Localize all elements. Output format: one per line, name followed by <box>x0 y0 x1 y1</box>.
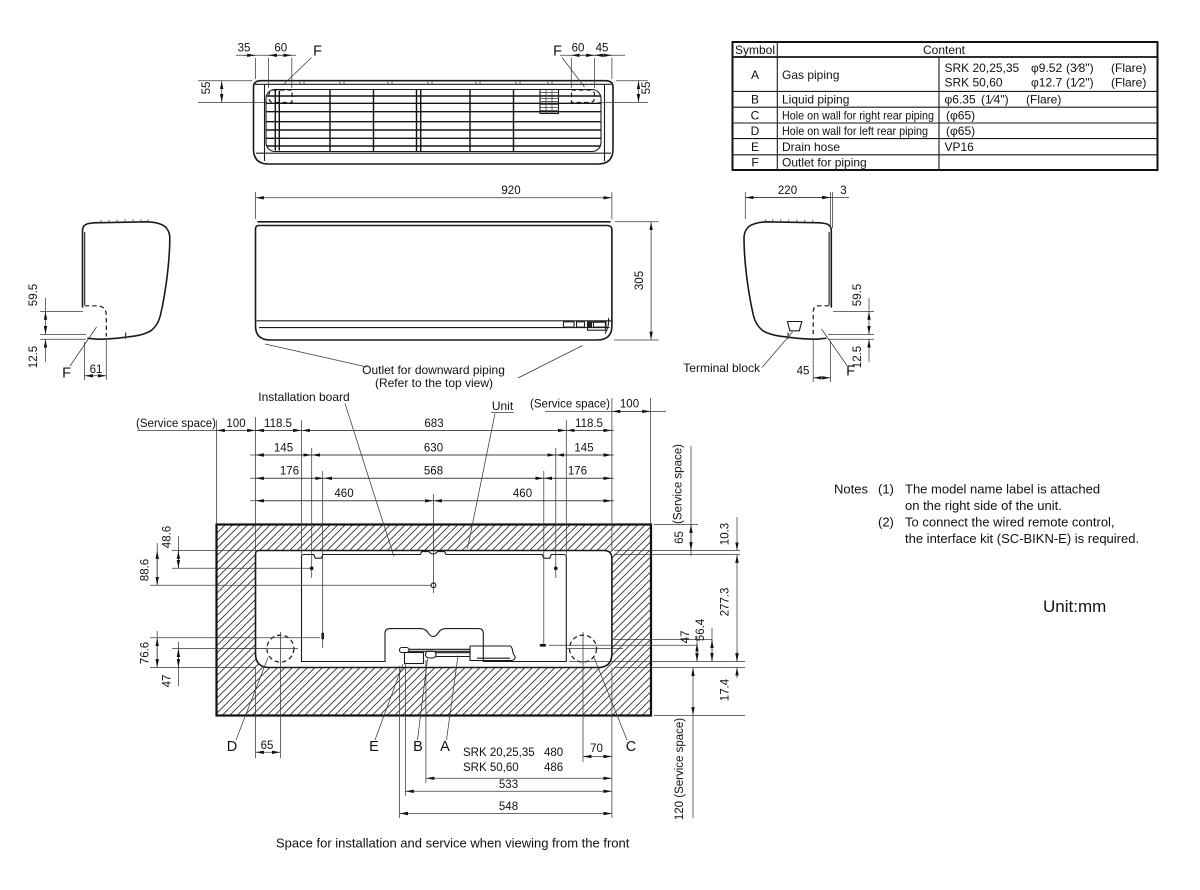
svg-text:(φ65): (φ65) <box>946 109 975 123</box>
svg-text:To connect the wired remote co: To connect the wired remote control, <box>905 515 1115 530</box>
svg-text:D: D <box>227 739 237 755</box>
svg-text:SRK 20,25,35: SRK 20,25,35 <box>463 747 535 759</box>
svg-text:45: 45 <box>797 366 810 378</box>
svg-text:Notes: Notes <box>834 482 868 497</box>
svg-text:SRK 50,60: SRK 50,60 <box>945 76 1003 90</box>
svg-text:145: 145 <box>274 442 293 454</box>
svg-text:E: E <box>751 140 759 154</box>
svg-text:(Service space): (Service space) <box>136 418 216 430</box>
svg-text:Drain hose: Drain hose <box>782 140 840 154</box>
svg-text:47: 47 <box>680 631 692 644</box>
svg-text:(Refer to the top view): (Refer to the top view) <box>375 376 493 390</box>
svg-text:C: C <box>751 109 760 123</box>
svg-text:220: 220 <box>778 185 797 197</box>
svg-text:C: C <box>626 739 636 755</box>
svg-text:Terminal block: Terminal block <box>683 361 761 375</box>
svg-text:55: 55 <box>641 82 653 95</box>
svg-text:100: 100 <box>226 418 245 430</box>
svg-text:55: 55 <box>201 82 213 95</box>
svg-text:568: 568 <box>424 466 443 478</box>
svg-text:460: 460 <box>513 488 532 500</box>
svg-text:920: 920 <box>501 185 520 197</box>
svg-text:D: D <box>751 124 760 138</box>
svg-text:Unit:mm: Unit:mm <box>1043 597 1106 616</box>
svg-text:Liquid piping: Liquid piping <box>782 93 849 107</box>
svg-text:F: F <box>313 44 322 60</box>
svg-text:59.5: 59.5 <box>852 284 864 306</box>
svg-text:VP16: VP16 <box>945 140 975 154</box>
svg-text:48.6: 48.6 <box>162 526 174 548</box>
svg-text:φ6.35: φ6.35 <box>945 93 976 107</box>
svg-text:F: F <box>62 366 71 382</box>
svg-text:Content: Content <box>923 43 966 57</box>
svg-text:35: 35 <box>238 43 251 55</box>
svg-text:φ9.52: φ9.52 <box>1031 61 1062 75</box>
svg-text:533: 533 <box>499 779 518 791</box>
svg-text:12.5: 12.5 <box>28 346 40 368</box>
svg-text:12.5: 12.5 <box>852 346 864 368</box>
svg-text:F: F <box>553 44 562 60</box>
svg-text:Unit: Unit <box>492 399 514 413</box>
svg-text:683: 683 <box>424 418 443 430</box>
svg-text:Installation board: Installation board <box>258 390 349 404</box>
svg-text:(1∕2"): (1∕2") <box>1066 76 1094 90</box>
svg-text:61: 61 <box>90 364 103 376</box>
svg-text:B: B <box>413 739 423 755</box>
svg-text:100: 100 <box>620 399 639 411</box>
svg-text:the interface kit (SC-BIKN-E): the interface kit (SC-BIKN-E) is require… <box>905 531 1139 546</box>
svg-text:(3∕8"): (3∕8") <box>1066 61 1094 75</box>
svg-text:(1): (1) <box>878 482 894 497</box>
svg-text:Outlet for piping: Outlet for piping <box>782 156 867 170</box>
svg-text:Outlet for downward piping: Outlet for downward piping <box>362 363 505 377</box>
svg-text:Space for installation and ser: Space for installation and service when … <box>276 836 630 851</box>
svg-text:The model name label is attach: The model name label is attached <box>905 482 1100 497</box>
svg-text:(Service space): (Service space) <box>673 444 685 524</box>
svg-text:(Flare): (Flare) <box>1111 61 1146 75</box>
svg-text:Symbol: Symbol <box>735 43 775 57</box>
svg-text:3: 3 <box>840 185 846 197</box>
svg-text:118.5: 118.5 <box>575 418 603 430</box>
svg-text:47: 47 <box>162 675 174 688</box>
svg-text:φ12.7: φ12.7 <box>1031 76 1062 90</box>
svg-text:(2): (2) <box>878 515 894 530</box>
svg-text:630: 630 <box>424 442 443 454</box>
svg-text:(Flare): (Flare) <box>1111 76 1146 90</box>
svg-text:176: 176 <box>280 466 299 478</box>
svg-text:118.5: 118.5 <box>264 418 292 430</box>
svg-text:486: 486 <box>544 762 563 774</box>
svg-text:Hole on wall for right rear pi: Hole on wall for right rear piping <box>782 109 934 123</box>
svg-text:70: 70 <box>590 743 603 755</box>
svg-text:120 (Service space): 120 (Service space) <box>674 718 686 820</box>
svg-text:176: 176 <box>568 466 587 478</box>
svg-text:59.5: 59.5 <box>28 284 40 306</box>
svg-text:(Service space): (Service space) <box>530 399 610 411</box>
svg-text:A: A <box>751 68 759 82</box>
svg-text:548: 548 <box>499 801 518 813</box>
svg-text:65: 65 <box>261 740 274 752</box>
svg-text:Gas piping: Gas piping <box>782 68 839 82</box>
svg-text:A: A <box>440 739 450 755</box>
svg-text:(Flare): (Flare) <box>1026 93 1061 107</box>
svg-text:460: 460 <box>334 488 353 500</box>
svg-text:277.3: 277.3 <box>720 588 732 617</box>
svg-text:F: F <box>751 156 758 170</box>
svg-text:B: B <box>751 93 759 107</box>
svg-text:Hole on wall for left rear pip: Hole on wall for left rear piping <box>782 124 928 138</box>
svg-text:60: 60 <box>274 43 287 55</box>
svg-text:SRK 50,60: SRK 50,60 <box>463 762 519 774</box>
svg-text:145: 145 <box>574 442 593 454</box>
svg-text:45: 45 <box>596 43 609 55</box>
svg-text:(φ65): (φ65) <box>946 124 975 138</box>
svg-text:88.6: 88.6 <box>140 559 152 581</box>
svg-text:(1∕4"): (1∕4") <box>981 93 1009 107</box>
svg-text:65: 65 <box>674 531 686 544</box>
svg-text:305: 305 <box>634 271 646 290</box>
svg-text:SRK 20,25,35: SRK 20,25,35 <box>945 61 1020 75</box>
svg-text:76.6: 76.6 <box>140 642 152 664</box>
svg-text:10.3: 10.3 <box>720 523 732 545</box>
svg-text:E: E <box>369 739 379 755</box>
svg-text:on the right side of the unit.: on the right side of the unit. <box>905 498 1062 513</box>
svg-text:60: 60 <box>572 43 585 55</box>
svg-text:17.4: 17.4 <box>720 678 732 701</box>
svg-text:480: 480 <box>544 747 563 759</box>
